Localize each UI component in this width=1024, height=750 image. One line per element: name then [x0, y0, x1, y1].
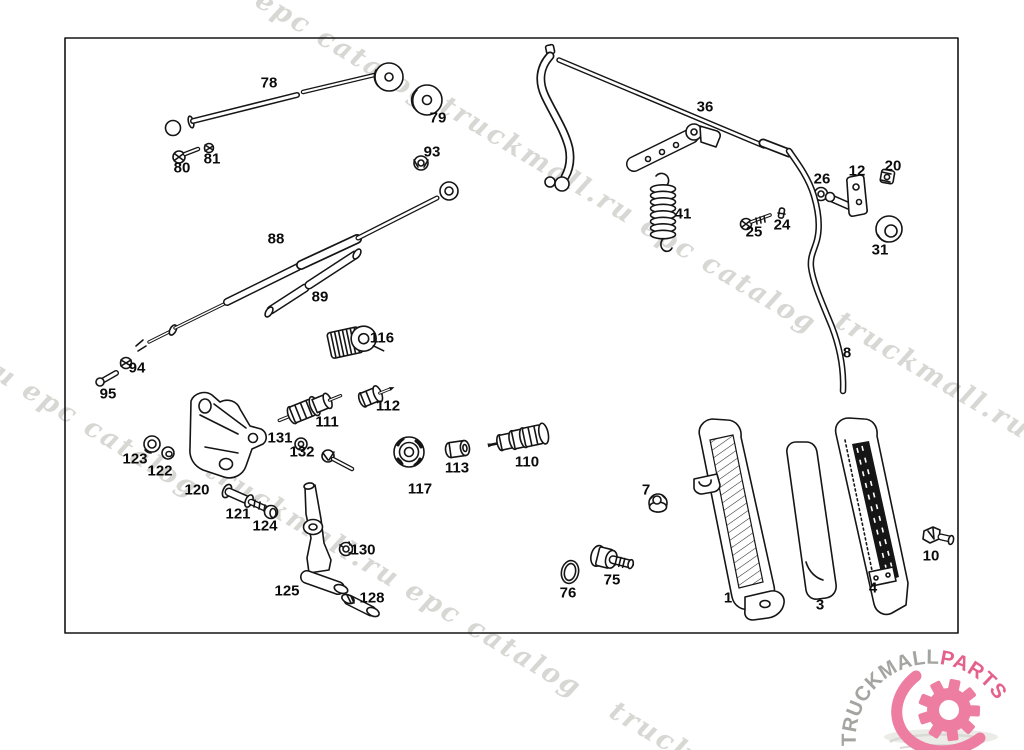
part-label-7: 7 [642, 482, 650, 499]
part-label-88: 88 [268, 231, 285, 248]
part-label-125: 125 [274, 583, 299, 600]
part-label-124: 124 [252, 518, 277, 535]
part-label-123: 123 [122, 451, 147, 468]
part-label-89: 89 [312, 289, 329, 306]
part-label-8: 8 [843, 345, 851, 362]
part-label-31: 31 [872, 242, 889, 259]
part-label-113: 113 [445, 460, 469, 477]
part-label-25: 25 [746, 224, 763, 241]
part-label-112: 112 [376, 398, 400, 415]
part-label-36: 36 [697, 99, 714, 116]
part-label-110: 110 [515, 454, 539, 471]
part-label-81: 81 [204, 151, 221, 168]
part-label-111: 111 [315, 414, 338, 431]
part-label-75: 75 [604, 572, 621, 589]
part-label-120: 120 [184, 482, 209, 499]
part-label-3: 3 [816, 597, 824, 614]
part-label-80: 80 [174, 160, 191, 177]
part-label-93: 93 [424, 144, 441, 161]
part-label-76: 76 [560, 585, 577, 602]
part-label-128: 128 [359, 590, 384, 607]
part-label-132: 132 [289, 444, 314, 461]
part-label-116: 116 [370, 330, 394, 347]
part-label-78: 78 [261, 75, 278, 92]
part-label-20: 20 [885, 158, 902, 175]
part-label-94: 94 [129, 360, 146, 377]
part-label-79: 79 [430, 110, 447, 127]
part-label-117: 117 [408, 481, 432, 498]
part-label-121: 121 [225, 506, 250, 523]
part-label-24: 24 [774, 217, 791, 234]
part-label-130: 130 [350, 542, 375, 559]
part-label-122: 122 [147, 463, 172, 480]
part-label-10: 10 [923, 548, 940, 565]
part-label-1: 1 [724, 590, 732, 607]
part-label-41: 41 [675, 206, 692, 223]
page: truckmall.ru epc catalogtruckmall.ru epc… [0, 0, 1024, 750]
part-label-4: 4 [869, 580, 877, 597]
part-label-95: 95 [100, 386, 117, 403]
part-label-26: 26 [814, 171, 831, 188]
part-label-layer: 7879808193364125242612203188889949511611… [0, 0, 1024, 750]
part-label-12: 12 [849, 163, 866, 180]
